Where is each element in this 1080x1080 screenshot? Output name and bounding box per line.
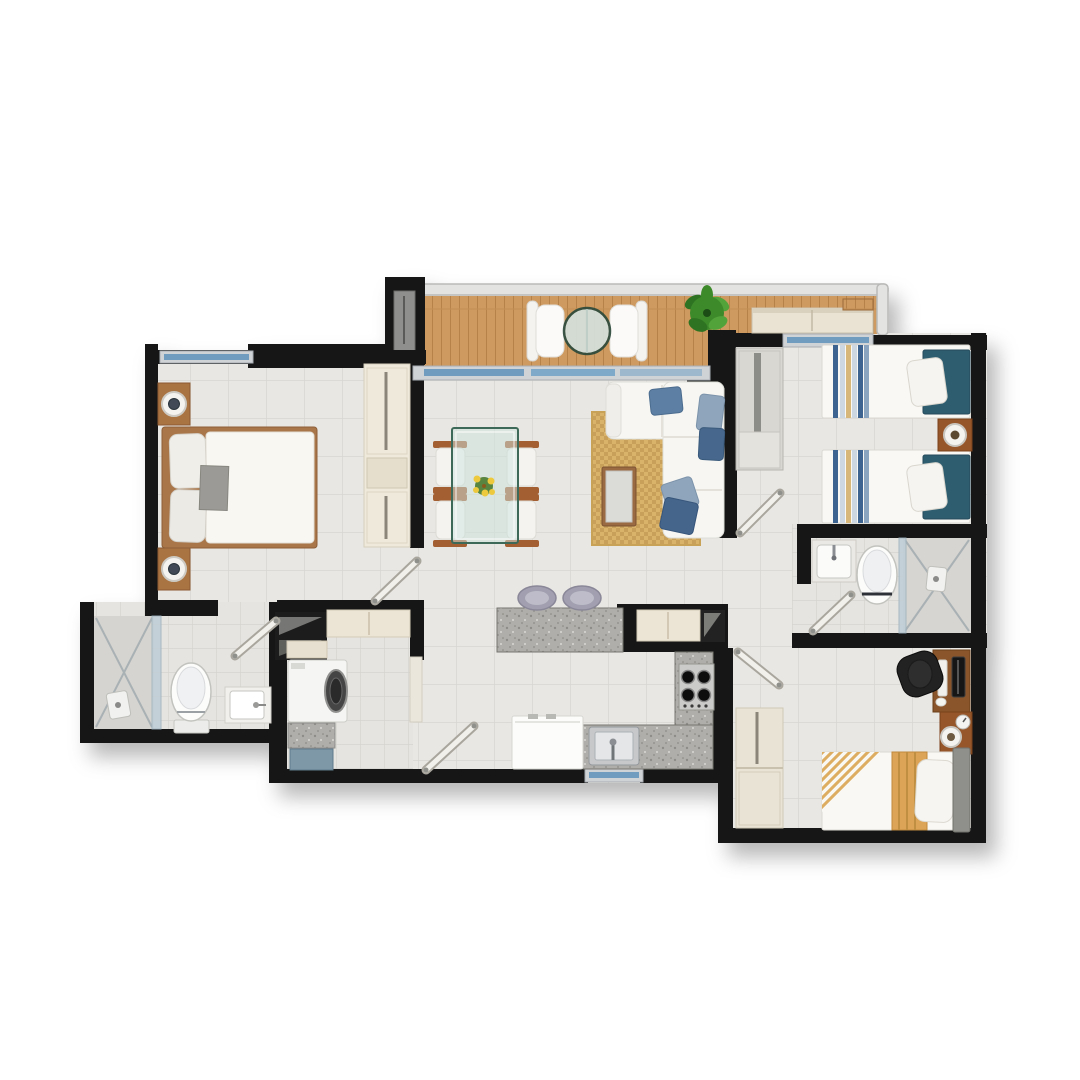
bedroom2-lamp-core — [951, 431, 960, 440]
wall-bath1-bottom — [792, 633, 987, 648]
bedroom3-lamp-core — [947, 733, 955, 741]
bed2a-stripe-2 — [840, 345, 845, 418]
dining-flower-4 — [473, 487, 479, 493]
bed2b-stripe-1 — [833, 450, 838, 523]
washing-machine-door-glass — [330, 678, 342, 704]
bedroom2-door-handle — [778, 491, 783, 496]
dining-flower-2 — [488, 478, 495, 485]
laundry-shelf-2 — [287, 641, 327, 658]
wall-bath2-left — [80, 602, 94, 743]
laundry-door-handle — [472, 724, 477, 729]
bathroom1-door-handle — [849, 593, 854, 598]
dining-flower-5 — [489, 489, 495, 495]
laundry-partition — [410, 657, 422, 722]
balcony-slider-pane-2 — [531, 369, 615, 376]
ensuite-sink-faucet-dot — [253, 702, 259, 708]
stove-burner-2 — [698, 671, 711, 684]
wall-laundry-right-upper — [410, 602, 424, 660]
ensuite-toilet-seat — [177, 667, 205, 709]
bathroom1-toilet-seat — [863, 550, 891, 592]
stove-knob-3 — [697, 704, 700, 707]
bed2a-stripe-4 — [852, 345, 857, 418]
stove-burner-1 — [682, 671, 695, 684]
master-window-glass — [164, 354, 249, 360]
office-chair-cushion — [908, 660, 932, 688]
bedroom2-door-hinge — [738, 531, 743, 536]
bed2b-stripe-2 — [840, 450, 845, 523]
bedroom2-window-glass — [787, 337, 869, 343]
laundry-door-hinge — [424, 768, 429, 773]
sofa-pillow-dark-corner — [659, 497, 699, 535]
stove-knob-1 — [683, 704, 686, 707]
bathroom1-door-hinge — [811, 629, 816, 634]
wall-bottom-right-segment — [640, 769, 728, 783]
wall-master-bottom-left — [145, 600, 218, 616]
bed2a-stripe-6 — [864, 345, 869, 418]
bed3-pillow — [914, 759, 955, 823]
master-bedroom-door-handle — [373, 599, 378, 604]
washing-machine-panel — [291, 663, 305, 669]
bed2b-stripe-4 — [852, 450, 857, 523]
stove-knob-2 — [690, 704, 693, 707]
bar-stool-2-cushion — [570, 591, 594, 605]
stove-burner-4 — [698, 689, 711, 702]
bed2b-stripe-5 — [858, 450, 863, 523]
floor-plan-svg — [0, 0, 1080, 1080]
ensuite-bathroom-door-handle — [233, 654, 238, 659]
floor-plan-stage — [0, 0, 1080, 1080]
refrigerator — [512, 716, 583, 769]
dining-centerpiece-core — [482, 484, 486, 488]
bed2b-stripe-6 — [864, 450, 869, 523]
plant-center — [703, 309, 711, 317]
stove-burner-3 — [682, 689, 695, 702]
bed2a-stripe-1 — [833, 345, 838, 418]
wall-right-main — [971, 333, 986, 843]
bedroom2-wardrobe-shelf — [739, 432, 780, 468]
sofa-pillow-light-right — [696, 394, 725, 433]
wall-bath1-left — [797, 524, 811, 584]
balcony-slider-pane-1 — [424, 369, 524, 376]
plant-leaf-5 — [701, 285, 713, 305]
bedroom3-door-hinge — [736, 650, 741, 655]
wall-master-right — [410, 364, 424, 548]
laundry-basin — [290, 749, 333, 770]
balcony-chair-2-seat — [610, 305, 638, 357]
balcony-railing-top — [406, 284, 888, 295]
master-bed-throw — [199, 466, 229, 511]
bedroom3-mouse — [936, 698, 946, 706]
ensuite-shower-partition — [152, 616, 161, 729]
refrigerator-handle-2 — [546, 714, 556, 719]
master-lamp-bottom-core — [169, 564, 180, 575]
balcony-railing-right — [877, 284, 888, 335]
bedroom3-door-handle — [777, 683, 782, 688]
sofa-pillow-dark-right — [698, 427, 725, 460]
bed2a-stripe-3 — [846, 345, 851, 418]
kitchen-faucet-head — [610, 739, 617, 746]
balcony-sideboard-tray — [843, 299, 873, 310]
ensuite-toilet-tank — [174, 720, 209, 733]
wall-bed2-bottom — [797, 524, 987, 538]
dining-flower-3 — [482, 490, 489, 497]
bed3-headboard — [953, 748, 970, 832]
kitchen-window-glass — [589, 772, 639, 778]
coffee-table-top — [606, 471, 632, 522]
refrigerator-handle-1 — [528, 714, 538, 719]
kitchen-bar-counter — [497, 608, 623, 652]
ensuite-bathroom-door-hinge — [274, 619, 279, 624]
master-lamp-top-core — [169, 399, 180, 410]
laundry-tub — [288, 723, 335, 748]
dining-flower-1 — [474, 476, 481, 483]
wall-master-left — [145, 344, 158, 614]
wall-bed2-top-left — [712, 333, 783, 347]
bathroom1-shower-head-dot — [933, 576, 939, 582]
bed2b-stripe-3 — [846, 450, 851, 523]
bed2a-pillow — [906, 357, 948, 408]
stove-knob-4 — [704, 704, 707, 707]
sofa-arm-left — [606, 384, 621, 437]
master-wardrobe-drawer — [367, 458, 407, 488]
bed2a-stripe-5 — [858, 345, 863, 418]
balcony-slider-pane-3 — [620, 369, 702, 376]
bar-stool-1-cushion — [525, 591, 549, 605]
bathroom1-shower-partition — [899, 538, 906, 633]
balcony-chair-1-seat — [536, 305, 564, 357]
wall-bed3-left — [718, 648, 733, 843]
master-bedroom-door-hinge — [415, 559, 420, 564]
sofa-pillow-blue-top — [649, 386, 684, 415]
ensuite-shower-head-dot — [115, 702, 121, 708]
bathroom1-faucet-dot — [832, 556, 837, 561]
bed2b-pillow — [906, 462, 948, 513]
